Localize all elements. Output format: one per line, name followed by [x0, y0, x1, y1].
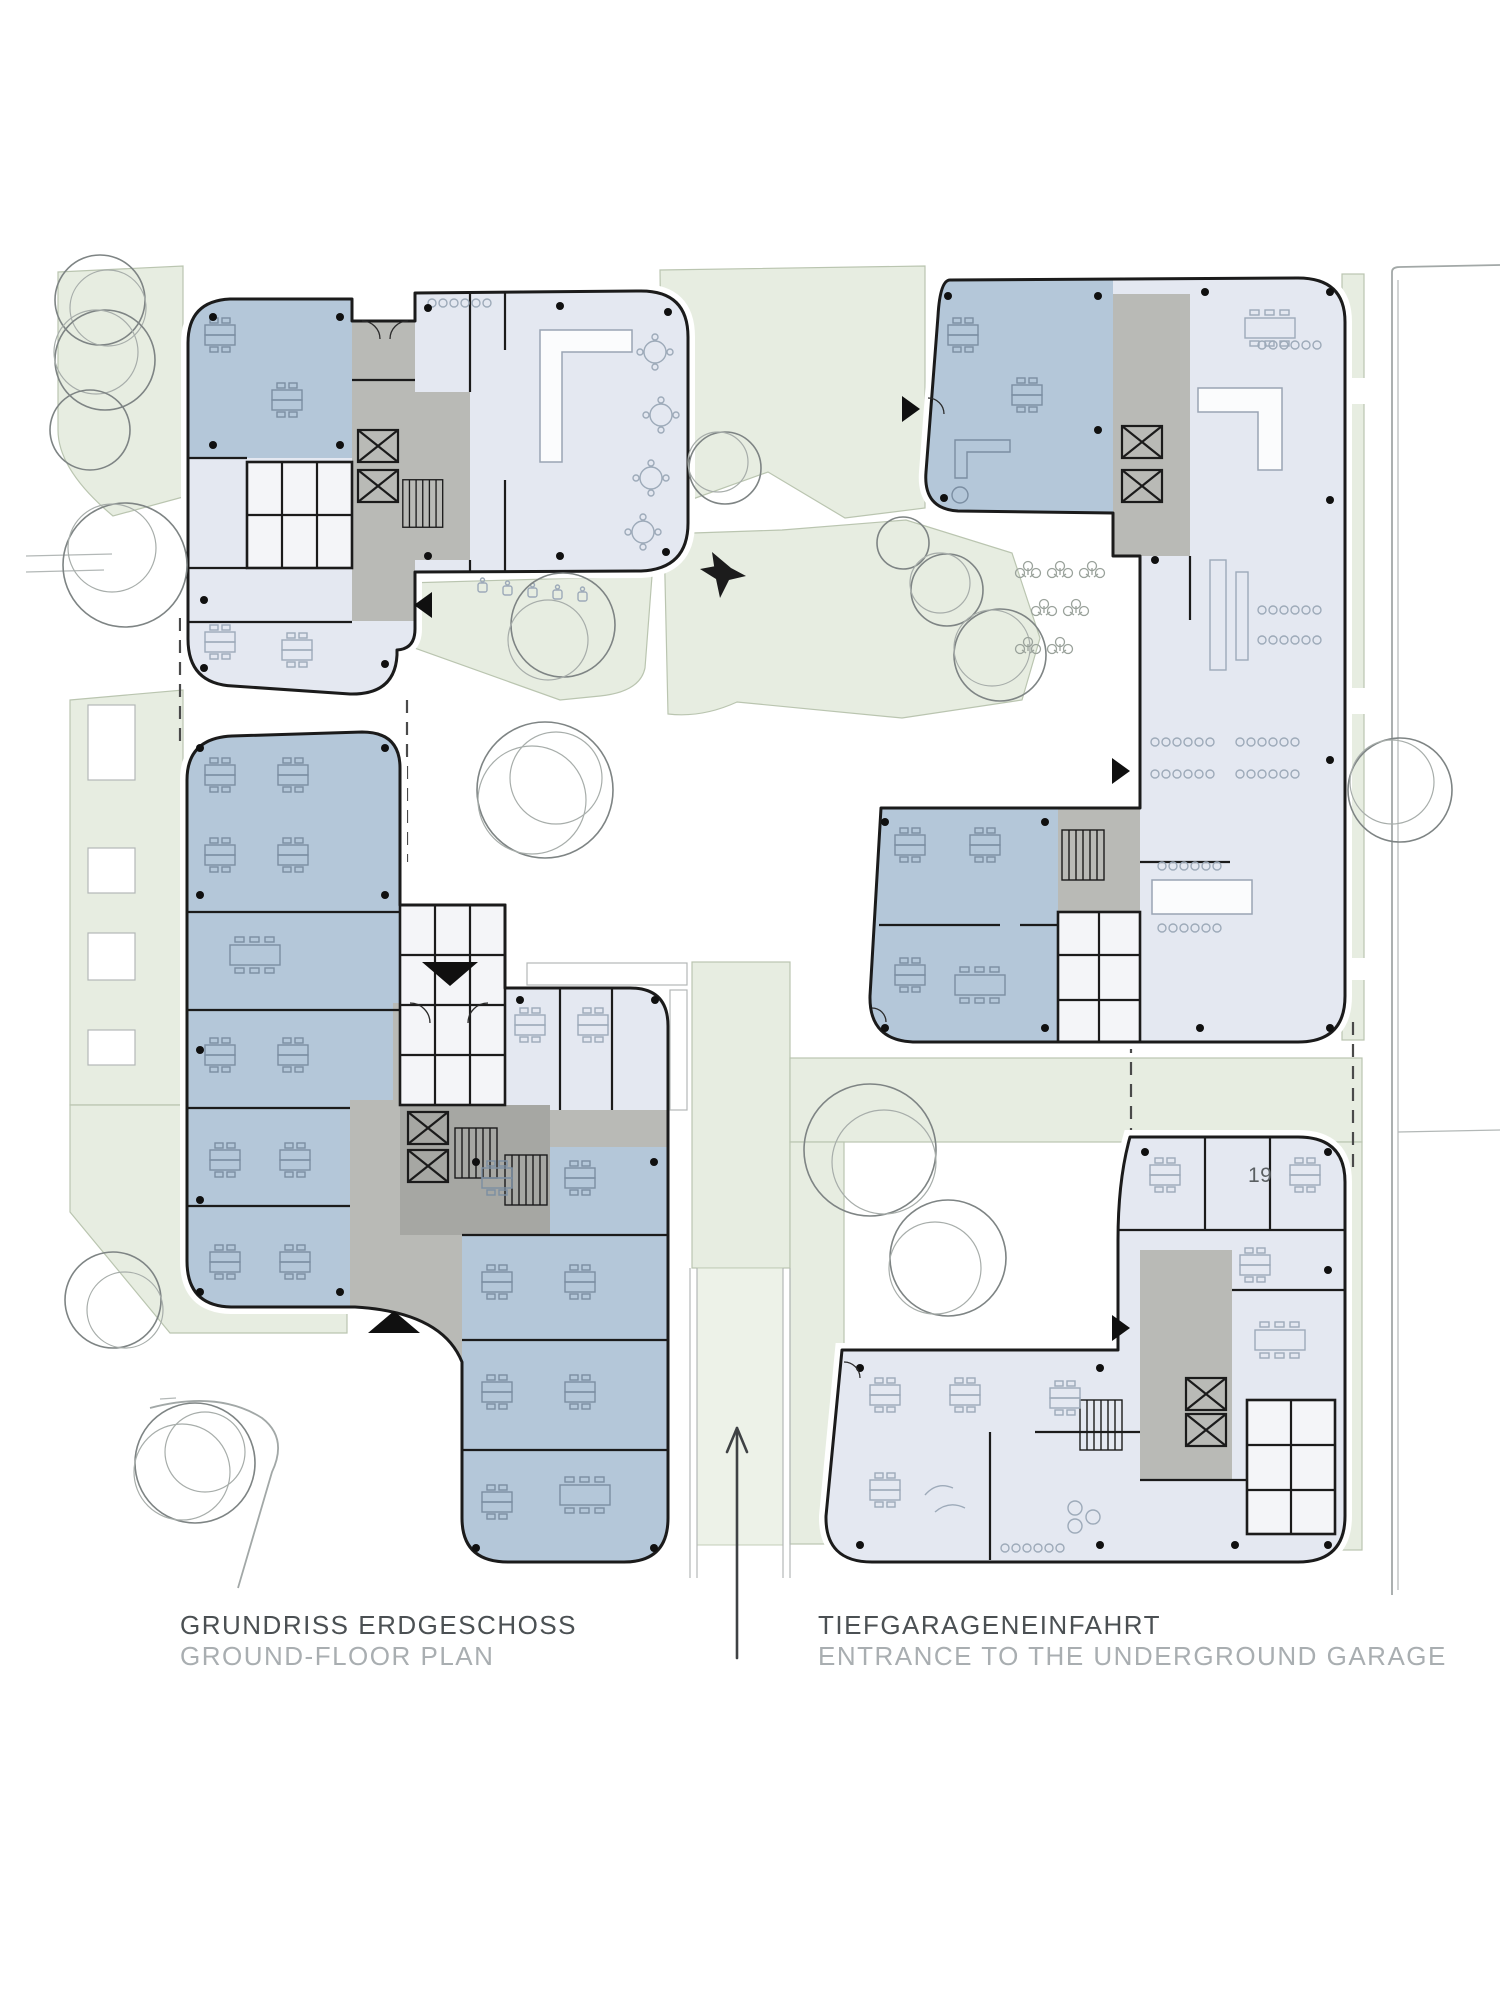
entrance-triangle-marker	[1112, 758, 1130, 784]
site-plan-page: 19	[0, 0, 1500, 2000]
building-d: 19	[826, 1137, 1345, 1562]
planting-icon	[1048, 638, 1073, 654]
planting-icon	[1064, 600, 1089, 616]
ground-floor-site-plan: 19	[0, 0, 1500, 2000]
floor-plan-label-de: GRUNDRISS ERDGESCHOSS	[180, 1610, 577, 1640]
floor-plan-label-en: GROUND-FLOOR PLAN	[180, 1641, 494, 1671]
caption-labels: GRUNDRISS ERDGESCHOSS GROUND-FLOOR PLAN …	[180, 1610, 1447, 1671]
garage-label-de: TIEFGARAGENEINFAHRT	[818, 1610, 1161, 1640]
garage-label-en: ENTRANCE TO THE UNDERGROUND GARAGE	[818, 1641, 1447, 1671]
planting-icon	[1080, 562, 1105, 578]
tree-icon	[63, 503, 187, 627]
tree-icon	[477, 722, 613, 858]
planting-icon	[1048, 562, 1073, 578]
room-number-label: 19	[1248, 1164, 1272, 1187]
tree-icon	[134, 1403, 255, 1523]
planting-icon	[1032, 600, 1057, 616]
tree-icon	[889, 1200, 1006, 1316]
building-c	[187, 732, 687, 1562]
